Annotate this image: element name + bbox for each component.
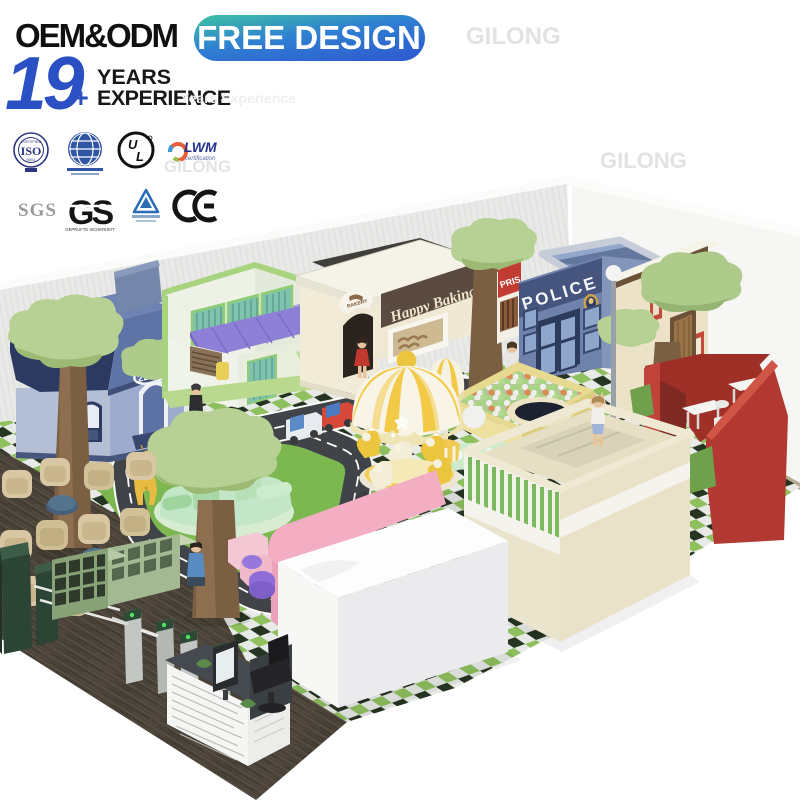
svg-text:9001: 9001	[27, 157, 37, 162]
svg-text:GEPRUFTE SICHERHEIT: GEPRUFTE SICHERHEIT	[65, 227, 115, 232]
svg-text:FREE DESIGN: FREE DESIGN	[197, 19, 421, 56]
svg-text:Years Experience: Years Experience	[180, 90, 296, 106]
svg-text:CERTIFIED: CERTIFIED	[20, 139, 41, 144]
svg-text:+: +	[73, 83, 89, 113]
svg-text:L: L	[136, 149, 144, 164]
svg-text:LWM: LWM	[184, 139, 217, 155]
svg-text:GILONG: GILONG	[600, 148, 687, 173]
svg-text:SGS: SGS	[18, 200, 57, 221]
svg-text:GILONG: GILONG	[466, 23, 561, 50]
svg-text:ISO: ISO	[21, 144, 42, 158]
svg-text:GILONG: GILONG	[164, 157, 231, 176]
